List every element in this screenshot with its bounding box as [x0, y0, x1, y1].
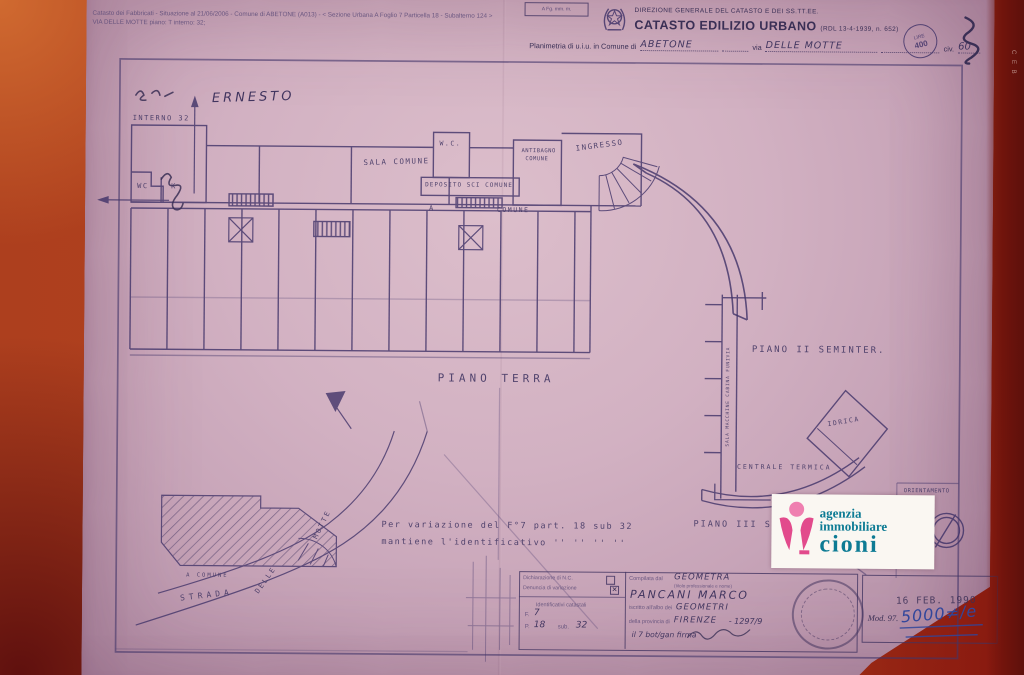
dichiarazione-checkbox — [606, 576, 615, 585]
identificativi-label: Identificativi catastali — [536, 602, 587, 610]
compilata-label: Compilata dal — [629, 576, 663, 584]
handwritten-scribbles — [135, 90, 184, 209]
photo-right-edge — [986, 0, 1024, 675]
label-funivia: SALA MACCHINE CABINA FUNIVIA — [726, 347, 732, 447]
edge-marking: C E B — [1010, 50, 1016, 76]
variation-line2: mantiene l'identificativo '' '' '' '' — [381, 537, 626, 549]
photo-of-cadastral-plan: Catasto dei Fabbricati - Situazione al 2… — [0, 0, 1024, 675]
sub-value: 32 — [576, 621, 588, 631]
ground-floor-plan — [98, 97, 749, 360]
label-centrale-termica: CENTRALE TERMICA — [737, 463, 832, 472]
label-wc-top: W.C. — [439, 139, 461, 147]
albo-numero: - 1297/9 — [729, 617, 763, 626]
provincia-value: FIRENZE — [674, 615, 717, 625]
p-value: 18 — [534, 620, 546, 630]
label-piano3: PIANO III S — [693, 519, 771, 530]
watermark-line3: cioni — [819, 532, 887, 557]
label-ernesto: ERNESTO — [212, 89, 295, 106]
sub-label: sub. — [558, 623, 569, 631]
paper-tilt-wrapper: Catasto dei Fabbricati - Situazione al 2… — [0, 0, 1024, 675]
dichiarazione-label: Dichiarazione di N.C. — [523, 575, 573, 583]
mod97-label: Mod. 97. — [868, 613, 899, 623]
label-piano-terra: PIANO TERRA — [438, 371, 555, 385]
denuncia-checkbox: ✕ — [610, 586, 619, 595]
label-wc: WC — [137, 182, 148, 190]
label-deposito: DEPOSITO SCI COMUNE — [425, 181, 513, 189]
firma-line: il 7 bot/gan firma — [632, 630, 697, 640]
compilata-value: GEOMETRA — [674, 572, 730, 582]
garage-partitions — [130, 202, 591, 353]
label-k: K — [171, 182, 177, 190]
watermark-text: agenzia immobiliare cioni — [819, 506, 887, 557]
albo-value: GEOMETRI — [676, 602, 729, 612]
cioni-logo-icon — [775, 500, 815, 562]
column-x-boxes — [229, 218, 483, 250]
provincia-label: della provincia di — [629, 619, 670, 627]
label-interno: INTERNO 32 — [133, 114, 190, 122]
plan-linework — [0, 0, 1024, 675]
nome-value: PANCANI MARCO — [630, 588, 749, 602]
label-sala-comune: SALA COMUNE — [363, 156, 429, 167]
label-comune: COMUNE — [497, 206, 530, 214]
label-orientamento: ORIENTAMENTO — [904, 488, 950, 494]
label-antibagno-1: ANTIBAGNO — [521, 148, 555, 154]
denuncia-label: Denuncia di variazione — [523, 585, 577, 593]
p-label: P. — [525, 623, 530, 631]
f-value: 7 — [534, 608, 540, 618]
variation-line1: Per variazione del F°7 part. 18 sub 32 — [381, 520, 633, 532]
parcel-scale-lines — [465, 556, 516, 662]
entry-fan-stair — [599, 157, 659, 211]
f-label: F. — [525, 611, 530, 619]
iscritto-label: iscritto all'albo dei — [629, 605, 672, 613]
label-a-comune: A COMUNE — [186, 572, 229, 578]
agency-watermark: agenzia immobiliare cioni — [771, 494, 935, 569]
label-antibagno-2: COMUNE — [525, 156, 548, 162]
label-a: A — [429, 204, 435, 212]
label-piano2: PIANO II SEMINTER. — [752, 345, 886, 356]
